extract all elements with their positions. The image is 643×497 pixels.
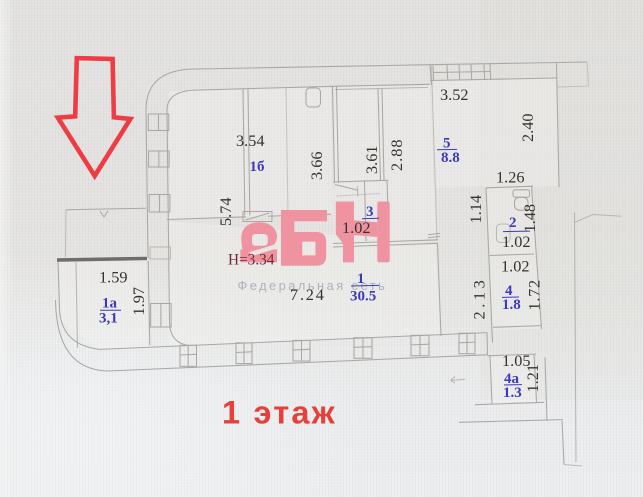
svg-text:1.59: 1.59 xyxy=(99,268,128,287)
svg-text:2.40: 2.40 xyxy=(518,114,537,143)
svg-text:3.61: 3.61 xyxy=(362,146,381,175)
svg-text:1.8: 1.8 xyxy=(502,297,521,313)
svg-text:1.3: 1.3 xyxy=(503,385,522,401)
svg-text:1б: 1б xyxy=(250,159,265,175)
svg-text:1.02: 1.02 xyxy=(342,218,371,237)
svg-text:Н=3.34: Н=3.34 xyxy=(228,252,275,269)
svg-text:30.5: 30.5 xyxy=(350,289,376,305)
svg-text:1.48: 1.48 xyxy=(520,204,539,233)
svg-text:8.8: 8.8 xyxy=(441,150,460,166)
svg-text:1.97: 1.97 xyxy=(129,287,148,316)
svg-text:3: 3 xyxy=(366,204,374,220)
svg-text:5.74: 5.74 xyxy=(216,198,235,227)
svg-text:1 этаж: 1 этаж xyxy=(222,395,337,431)
svg-text:1.26: 1.26 xyxy=(496,168,525,187)
svg-text:1.02: 1.02 xyxy=(501,257,530,276)
svg-text:1.02: 1.02 xyxy=(502,232,531,251)
svg-text:1.72: 1.72 xyxy=(525,279,544,310)
svg-text:3,1: 3,1 xyxy=(99,311,118,327)
svg-text:3.66: 3.66 xyxy=(307,152,326,181)
svg-text:3.52: 3.52 xyxy=(440,85,469,104)
svg-text:7.24: 7.24 xyxy=(290,285,326,304)
svg-text:1а: 1а xyxy=(102,296,118,312)
svg-text:1: 1 xyxy=(357,271,365,287)
svg-text:2.88: 2.88 xyxy=(387,139,406,172)
svg-text:1.21: 1.21 xyxy=(523,364,542,393)
svg-text:3.54: 3.54 xyxy=(236,131,265,150)
svg-text:1.14: 1.14 xyxy=(466,195,485,224)
svg-text:2: 2 xyxy=(509,215,517,231)
svg-text:2.13: 2.13 xyxy=(470,277,489,320)
